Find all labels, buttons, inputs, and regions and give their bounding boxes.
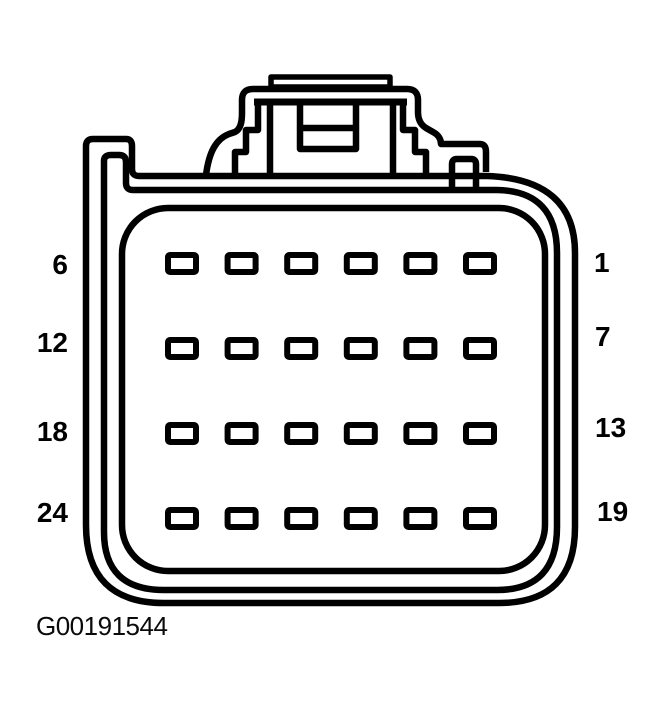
pin-row-label-left-18: 18 — [18, 418, 68, 446]
pin-slot — [228, 510, 256, 527]
pin-row-label-right-19: 19 — [597, 498, 628, 526]
pin-slot — [406, 425, 434, 442]
pin-slot — [228, 255, 256, 272]
pin-slot — [228, 425, 256, 442]
pin-slot — [287, 425, 315, 442]
pin-slot — [466, 255, 494, 272]
pin-slot — [406, 510, 434, 527]
pin-slot — [347, 255, 375, 272]
pin-row-label-right-7: 7 — [595, 323, 611, 351]
pin-row-label-left-12: 12 — [18, 329, 68, 357]
pin-slot — [406, 340, 434, 357]
pin-slot — [228, 340, 256, 357]
pin-slot — [406, 255, 434, 272]
pin-slot — [168, 340, 196, 357]
pin-slot — [347, 425, 375, 442]
latch-top-tab — [271, 77, 390, 87]
pin-slot — [168, 510, 196, 527]
pin-row-label-left-6: 6 — [18, 251, 68, 279]
pin-slot — [287, 510, 315, 527]
pin-slot — [168, 255, 196, 272]
connector-line-art — [0, 0, 662, 711]
pin-slot — [287, 340, 315, 357]
pin-row-label-right-1: 1 — [594, 249, 610, 277]
pin-cavity-outline — [122, 208, 545, 571]
figure-id-caption: G00191544 — [36, 613, 167, 639]
pin-slot — [168, 425, 196, 442]
pin-slot — [466, 425, 494, 442]
latch-castle-left-foot — [235, 104, 258, 174]
pin-slot — [347, 510, 375, 527]
pin-grid — [168, 255, 494, 527]
pin-slot — [466, 340, 494, 357]
connector-diagram: 6 12 18 24 1 7 13 19 G00191544 — [0, 0, 662, 711]
pin-slot — [466, 510, 494, 527]
pin-row-label-left-24: 24 — [18, 499, 68, 527]
pin-slot — [347, 340, 375, 357]
latch-castle-right-foot — [403, 104, 426, 174]
pin-slot — [287, 255, 315, 272]
pin-row-label-right-13: 13 — [595, 414, 626, 442]
